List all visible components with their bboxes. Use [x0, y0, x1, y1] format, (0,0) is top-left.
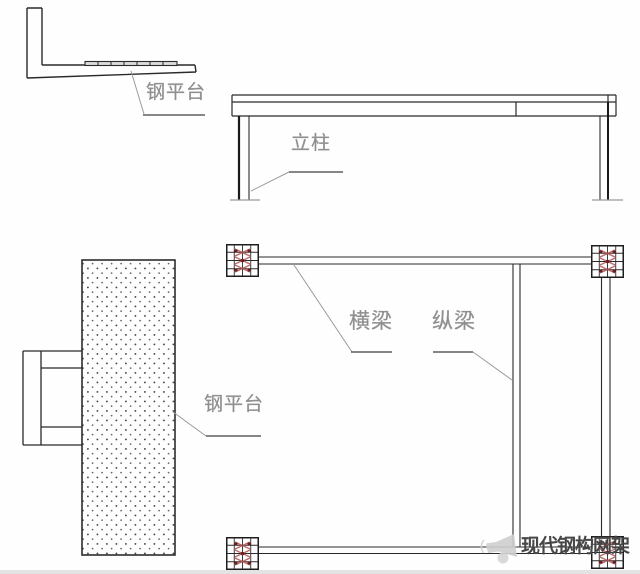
longitudinal-beam	[513, 264, 520, 547]
platform-bracket	[23, 351, 82, 445]
column-section-bottom-left	[227, 538, 259, 570]
megaphone-icon	[481, 534, 517, 564]
leader-column	[251, 172, 289, 191]
label-steel-platform-side: 钢平台	[146, 83, 206, 102]
top-cross-beam	[259, 257, 591, 264]
label-steel-platform-plan: 钢平台	[204, 395, 264, 414]
page-bottom-edge	[0, 570, 640, 574]
leader-cross-beam	[294, 265, 352, 352]
label-cross-beam: 横梁	[349, 311, 393, 332]
watermark-text: 现代钢构网架	[521, 537, 629, 556]
leader-side-platform	[131, 71, 144, 114]
right-edge-beam	[602, 278, 611, 536]
cad-linework	[0, 0, 640, 574]
label-longitudinal-beam: 纵梁	[432, 311, 476, 332]
elevation-view	[230, 95, 623, 200]
beam-outline	[232, 95, 616, 116]
grating-strip	[85, 62, 177, 66]
column-section-top-right	[592, 246, 624, 278]
label-column: 立柱	[291, 134, 331, 153]
bracket-outline	[27, 8, 196, 78]
drawing-canvas: 钢平台 立柱 钢平台 横梁 纵梁 现代钢构网架	[0, 0, 640, 574]
column-section-top-left	[227, 245, 259, 277]
platform-deck	[82, 260, 175, 555]
leader-plan-platform	[173, 412, 206, 436]
plan-frame-view	[227, 245, 624, 570]
leader-longitudinal-beam	[473, 352, 512, 380]
